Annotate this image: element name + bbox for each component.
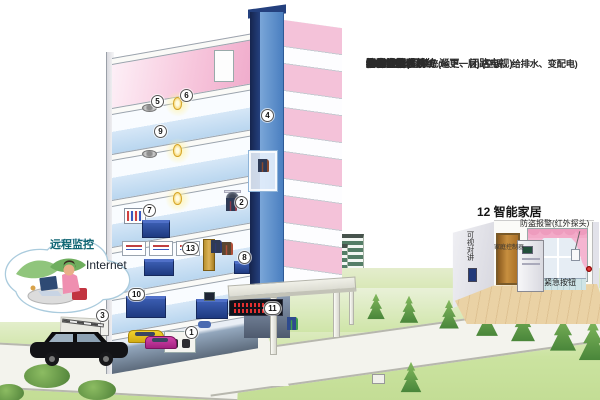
marker-6: 6 xyxy=(180,89,193,102)
marker-5: 5 xyxy=(151,95,164,108)
canopy-pillar xyxy=(333,288,340,338)
operator-head xyxy=(64,265,75,276)
elevator-car xyxy=(248,150,278,192)
workstation-monitor xyxy=(204,292,215,301)
marker-9: 9 xyxy=(154,125,167,138)
remote-monitoring-label: 远程监控 xyxy=(50,236,94,252)
equipment-desk xyxy=(144,259,174,276)
wiring-screen xyxy=(149,241,173,256)
office-chair xyxy=(198,321,211,328)
smart-building-diagram: 1 2 3 4 5 6 7 8 9 10 11 13 远程监控 Internet xyxy=(0,0,600,400)
bush xyxy=(0,384,24,400)
marker-3: 3 xyxy=(96,309,109,322)
marker-8: 8 xyxy=(238,251,251,264)
lightbulb-icon xyxy=(165,138,191,164)
building-right-wall xyxy=(284,20,342,290)
control-cabinet xyxy=(142,220,170,238)
marker-11: 11 xyxy=(264,302,281,315)
bush xyxy=(78,380,116,400)
cup-icon xyxy=(31,286,36,291)
marker-13: 13 xyxy=(182,242,199,255)
infrared-sensor-icon xyxy=(571,249,580,261)
intercom-label: 可视对讲 xyxy=(464,231,476,271)
parked-car-magenta xyxy=(145,336,177,349)
utility-box xyxy=(372,374,385,384)
marker-1: 1 xyxy=(185,326,198,339)
marker-4: 4 xyxy=(261,109,274,122)
penthouse-door xyxy=(214,50,234,82)
alarm-label: 防盗报警(红外探头) xyxy=(520,218,589,229)
black-car xyxy=(28,326,132,368)
speaker-icon xyxy=(142,150,157,158)
workstation-desk xyxy=(196,299,228,319)
emergency-button-icon xyxy=(586,266,592,272)
laptop-icon xyxy=(39,276,58,291)
lightbulb-icon xyxy=(165,186,191,212)
internet-label: Internet xyxy=(86,258,127,272)
marker-10: 10 xyxy=(128,288,145,301)
marker-7: 7 xyxy=(143,204,156,217)
emergency-label: 紧急按钮 xyxy=(544,277,576,288)
marker-2: 2 xyxy=(235,196,248,209)
controller-label: 家庭控制器 xyxy=(494,242,524,251)
